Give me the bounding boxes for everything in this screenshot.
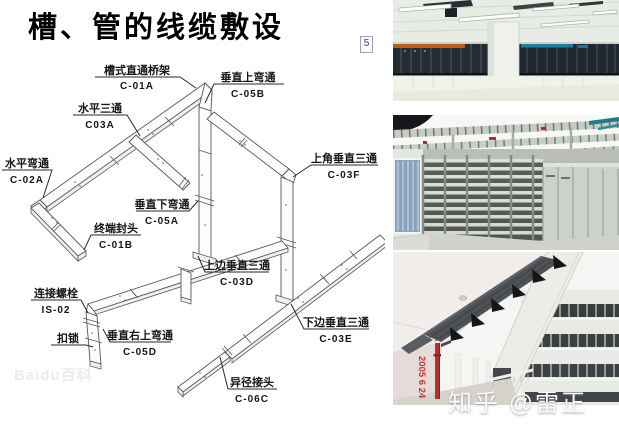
svg-text:异径接头: 异径接头	[230, 375, 274, 389]
svg-text:C-03E: C-03E	[319, 334, 352, 345]
svg-text:C-01B: C-01B	[99, 240, 133, 251]
svg-text:上角垂直三通: 上角垂直三通	[311, 151, 377, 165]
baidu-watermark: Baidu百科	[14, 364, 93, 385]
diagram-label: 水平三通 C03A	[73, 101, 140, 136]
diagram-label: 扣锁	[51, 331, 93, 347]
diagram-label: 连接螺栓 IS-02	[31, 286, 88, 316]
server-racks-left	[393, 44, 488, 76]
diagram-label: 下边垂直三通 C-03E	[291, 304, 369, 345]
photo-rack-room	[393, 115, 619, 250]
svg-text:C-03F: C-03F	[328, 170, 361, 181]
svg-text:垂直上弯通: 垂直上弯通	[221, 70, 276, 84]
svg-text:C-05A: C-05A	[145, 216, 179, 227]
diagram-label: 水平弯通 C-02A	[2, 156, 52, 198]
svg-text:C-01A: C-01A	[120, 81, 154, 92]
svg-text:扣锁: 扣锁	[57, 331, 79, 345]
window-curtain	[394, 159, 421, 233]
diagram-label: 垂直上弯通 C-05B	[205, 70, 284, 103]
page-title: 槽、管的线缆敷设	[28, 4, 284, 46]
diagram-label: 垂直下弯通 C-05A	[135, 197, 199, 227]
svg-text:垂直右上弯通: 垂直右上弯通	[107, 328, 173, 342]
svg-text:水平弯通: 水平弯通	[5, 156, 49, 170]
server-racks-right	[519, 44, 619, 76]
equipment-racks	[423, 155, 543, 243]
svg-text:终端封头: 终端封头	[94, 221, 138, 235]
svg-text:水平三通: 水平三通	[78, 101, 122, 115]
svg-text:下边垂直三通: 下边垂直三通	[303, 315, 369, 329]
svg-text:C-03D: C-03D	[220, 277, 254, 288]
diagram-label: 上角垂直三通 C-03F	[293, 151, 378, 181]
slide-page: 槽、管的线缆敷设 5	[0, 0, 619, 427]
svg-text:C03A: C03A	[85, 120, 115, 131]
tray-structure	[31, 83, 385, 397]
svg-text:垂直下弯通: 垂直下弯通	[135, 197, 190, 211]
svg-text:上边垂直三通: 上边垂直三通	[204, 258, 270, 272]
diagram-label: 垂直右上弯通 C-05D	[103, 328, 173, 358]
svg-text:C-05D: C-05D	[123, 347, 157, 358]
svg-text:C-02A: C-02A	[10, 175, 44, 186]
diagram-label: 上边垂直三通 C-03D	[198, 256, 270, 288]
column	[488, 22, 519, 78]
svg-text:C-06C: C-06C	[235, 394, 269, 405]
diagram-label: 终端封头 C-01B	[84, 221, 141, 251]
svg-text:C-05B: C-05B	[231, 89, 265, 100]
svg-text:槽式直通桥架: 槽式直通桥架	[104, 63, 170, 77]
page-number-badge: 5	[360, 36, 373, 53]
floor	[393, 76, 619, 101]
date-stamp: 2005 6 24	[416, 356, 427, 399]
diagram-label: 异径接头 C-06C	[220, 357, 277, 405]
svg-text:连接螺栓: 连接螺栓	[34, 286, 78, 300]
cabinet-row-right	[543, 163, 619, 243]
svg-text:IS-02: IS-02	[42, 305, 71, 316]
zhihu-watermark: 知乎 @雷正	[448, 383, 587, 418]
diagram-label: 槽式直通桥架 C-01A	[95, 63, 196, 92]
photo-server-room	[393, 0, 619, 101]
